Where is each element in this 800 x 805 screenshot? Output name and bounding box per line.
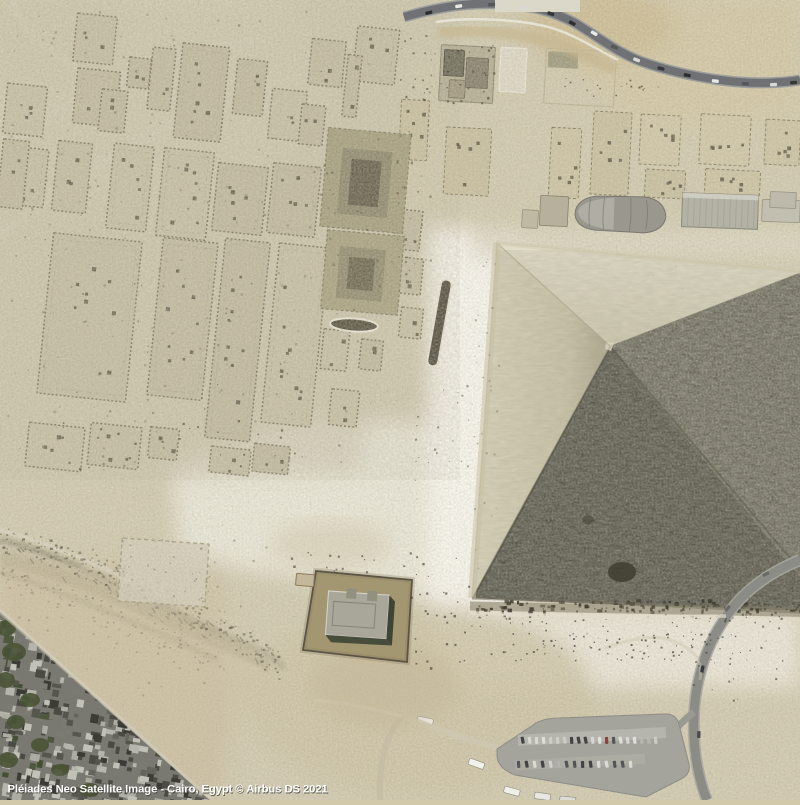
svg-text:Pléiades Neo Satellite Image -: Pléiades Neo Satellite Image - Cairo, Eg…	[8, 784, 328, 796]
